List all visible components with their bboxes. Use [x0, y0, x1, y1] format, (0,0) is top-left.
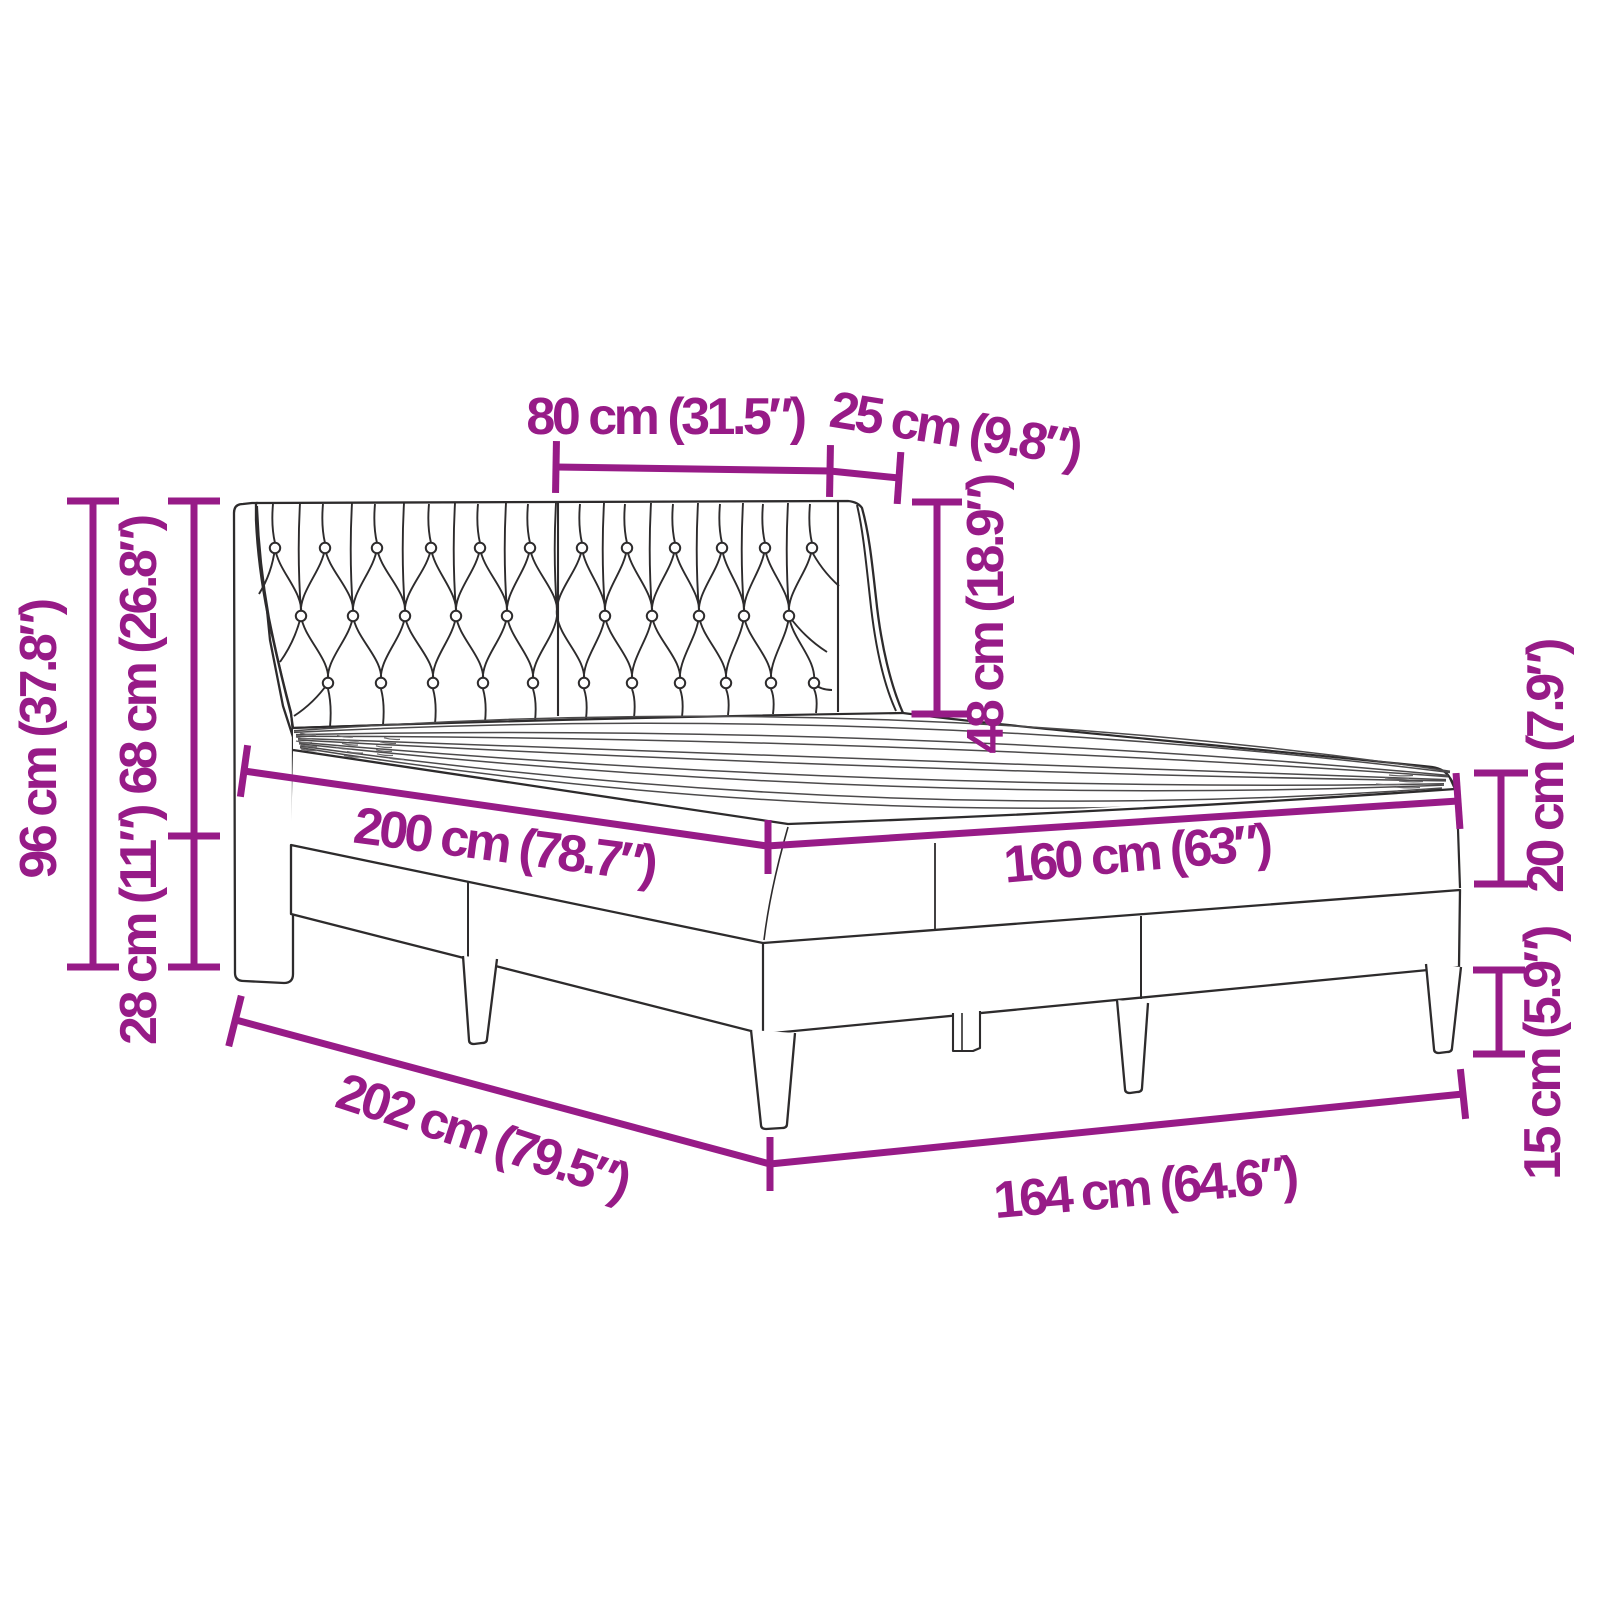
- svg-text:96 cm (37.8″): 96 cm (37.8″): [10, 600, 68, 878]
- svg-text:68 cm (26.8″): 68 cm (26.8″): [110, 516, 168, 794]
- svg-text:28 cm (11″): 28 cm (11″): [110, 806, 168, 1045]
- svg-text:48 cm (18.9″): 48 cm (18.9″): [957, 475, 1015, 753]
- svg-text:20 cm (7.9″): 20 cm (7.9″): [1517, 640, 1575, 893]
- svg-text:80 cm (31.5″): 80 cm (31.5″): [526, 388, 804, 446]
- svg-text:15 cm (5.9″): 15 cm (5.9″): [1514, 927, 1572, 1180]
